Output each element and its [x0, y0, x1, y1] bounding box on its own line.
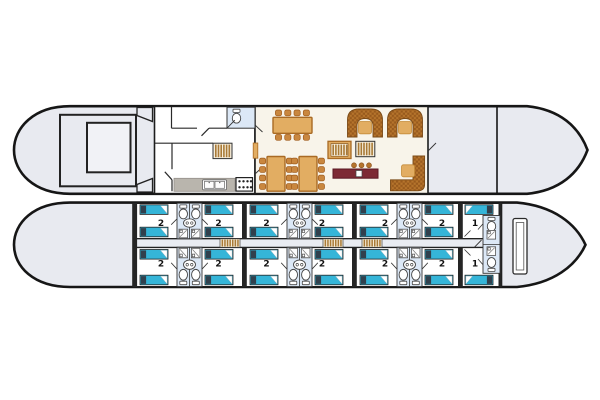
cabin-number: 2 — [382, 219, 388, 229]
cabin-number: 2 — [158, 260, 164, 270]
cabin-number: 1 — [472, 219, 478, 229]
bed-icon — [140, 275, 168, 285]
bed-icon — [360, 275, 388, 285]
bar-counter — [333, 169, 378, 178]
bed-icon — [360, 205, 388, 215]
bed-icon — [425, 275, 453, 285]
bar-stools — [352, 163, 372, 168]
cabin-number: 2 — [215, 219, 221, 229]
bed-icon — [250, 205, 278, 215]
bed-icon — [250, 250, 278, 260]
bed-icon — [465, 275, 493, 285]
lower-deck: 2 2 2 2 2 2 1 — [14, 203, 586, 287]
cabin-number: 2 — [263, 260, 269, 270]
bed-icon — [205, 275, 233, 285]
cabin-number: 2 — [263, 219, 269, 229]
coffee-table — [359, 122, 372, 134]
galley-staircase-icon — [213, 143, 232, 158]
cabin-number: 2 — [319, 219, 325, 229]
cabin-number: 1 — [472, 260, 478, 270]
corridor-staircase-icon — [362, 239, 382, 248]
bed-icon — [250, 275, 278, 285]
bed-icon — [425, 250, 453, 260]
corridor — [137, 239, 483, 248]
corridor-staircase-icon — [220, 239, 240, 248]
bathroom-pair — [171, 247, 208, 286]
deck-plan-canvas: 2 2 2 2 2 2 1 — [0, 0, 600, 400]
coffee-table — [399, 122, 412, 134]
cabin-number: 2 — [319, 260, 325, 270]
bed-icon — [315, 205, 343, 215]
bed-icon — [425, 205, 453, 215]
bed-icon — [140, 250, 168, 260]
cabin-number: 2 — [382, 260, 388, 270]
corridor-staircase-icon — [323, 239, 343, 248]
bed-icon — [315, 275, 343, 285]
bathroom-pair — [171, 203, 208, 239]
cabin-number: 2 — [439, 260, 445, 270]
cabin-number: 2 — [215, 260, 221, 270]
cabin-number: 2 — [439, 219, 445, 229]
bed-icon — [205, 205, 233, 215]
bow-locker — [513, 219, 527, 275]
lounge-staircase-framed — [328, 141, 351, 158]
upper-deck — [14, 106, 588, 194]
bed-icon — [465, 205, 493, 215]
cabin-number: 2 — [158, 219, 164, 229]
bed-icon — [205, 250, 233, 260]
bed-icon — [360, 250, 388, 260]
skylight — [87, 123, 131, 173]
bed-icon — [140, 205, 168, 215]
lounge-staircase-icon — [356, 141, 375, 156]
bathroom-pair — [391, 203, 428, 239]
coffee-table — [402, 165, 415, 177]
bathroom-pair — [391, 247, 428, 286]
sideboard — [253, 143, 258, 158]
bed-icon — [315, 250, 343, 260]
double-sink-icon — [203, 180, 227, 190]
deck-plan: 2 2 2 2 2 2 1 — [0, 0, 600, 400]
bathroom-pair — [281, 247, 318, 286]
stove-icon — [236, 178, 253, 192]
bathroom-pair — [281, 203, 318, 239]
